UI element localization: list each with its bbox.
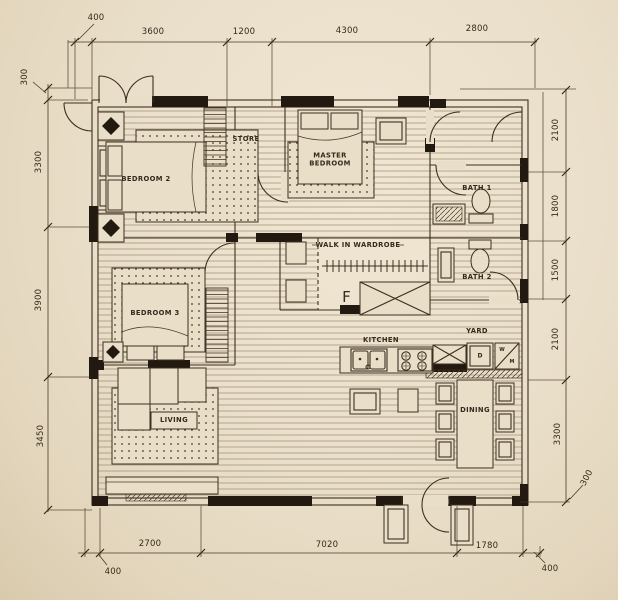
dim-top-1200: 1200 (233, 27, 255, 37)
entry-porch (384, 505, 473, 545)
room-label-store: STORE (233, 135, 260, 143)
dim-right-3300: 3300 (553, 423, 563, 445)
dim-left-300: 300 (20, 69, 30, 86)
room-label-walk-in-wardrobe: WALK IN WARDROBE (316, 241, 401, 249)
store-shelving (204, 108, 226, 166)
washer-label-w: W (499, 347, 505, 353)
dim-right-1500: 1500 (551, 259, 561, 281)
dim-left-3450: 3450 (36, 425, 46, 447)
room-label-bath2: BATH 2 (462, 273, 491, 281)
yard-appliances (467, 343, 519, 369)
dim-top-3600: 3600 (142, 27, 164, 37)
living-furniture (106, 368, 218, 501)
dim-top-4300: 4300 (336, 26, 358, 36)
dim-bottom-7020: 7020 (316, 540, 338, 550)
dryer-label: D (478, 353, 483, 360)
dim-top-400: 400 (88, 13, 105, 23)
dim-right-2100a: 2100 (551, 119, 561, 141)
dim-right-2100b: 2100 (551, 328, 561, 350)
room-label-master-bedroom: MASTER BEDROOM (307, 152, 353, 169)
room-label-living: LIVING (160, 416, 188, 424)
room-label-bedroom3: BEDROOM 3 (130, 309, 179, 317)
room-label-kitchen: KITCHEN (363, 336, 399, 344)
floor-plan-drawing (0, 0, 618, 600)
dining-furniture (436, 380, 514, 468)
room-label-bedroom2: BEDROOM 2 (121, 175, 170, 183)
dim-bottom-1780: 1780 (476, 541, 498, 551)
dim-bottom-400-right: 400 (542, 564, 559, 574)
room-label-bath1: BATH 1 (462, 184, 491, 192)
dim-left-3300: 3300 (34, 151, 44, 173)
dim-bottom-2700: 2700 (139, 539, 161, 549)
dim-bottom-400-left: 400 (105, 567, 122, 577)
floor-plan-paper: 400 3600 1200 4300 2800 300 3300 3900 34… (0, 0, 618, 600)
fridge-label: F (342, 288, 352, 306)
dim-left-3900: 3900 (34, 289, 44, 311)
washer-label-m: M (510, 359, 515, 365)
dim-top-2800: 2800 (466, 24, 488, 34)
room-label-dining: DINING (460, 406, 490, 414)
dim-right-1800: 1800 (551, 195, 561, 217)
room-label-yard: YARD (466, 327, 488, 335)
